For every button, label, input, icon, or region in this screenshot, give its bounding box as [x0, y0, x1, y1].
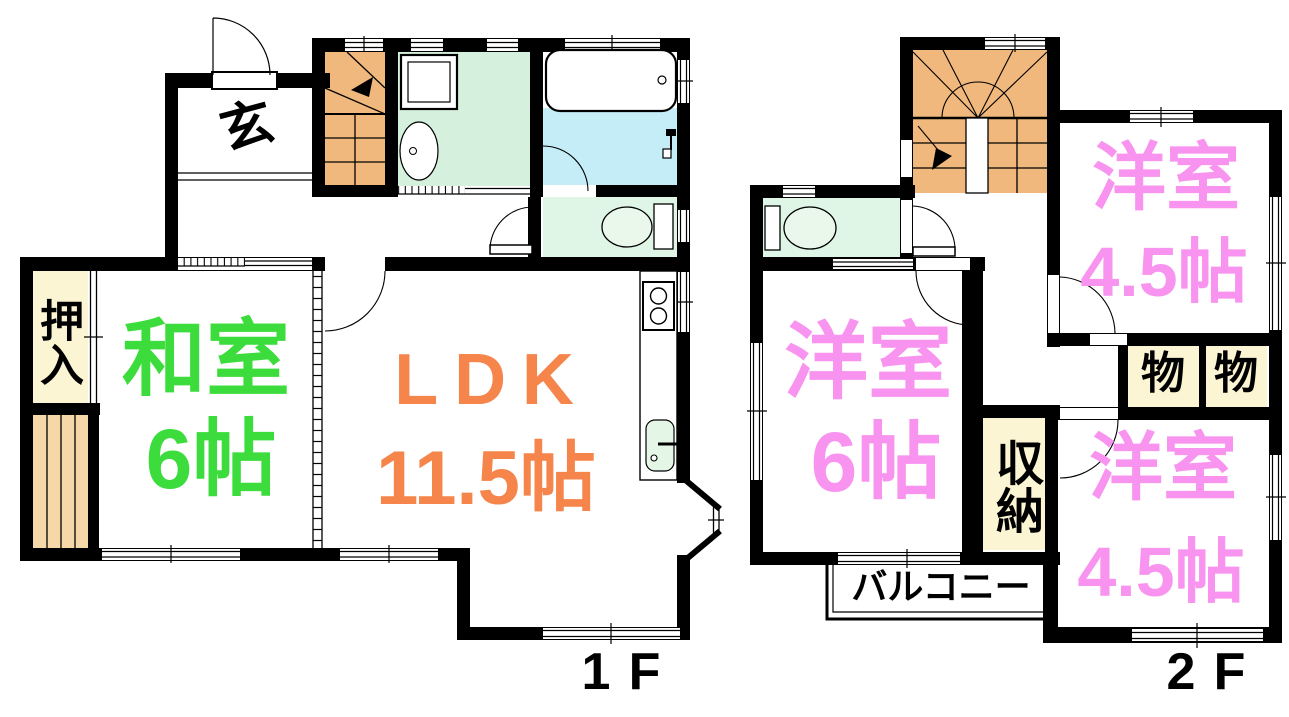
stove — [643, 282, 674, 330]
balcony-label: バルコニー — [851, 569, 1030, 605]
hall-hatch-opening — [178, 258, 245, 266]
toilet-bowl-1f — [602, 204, 673, 249]
toilet-bowl-2f — [765, 206, 836, 250]
washing-machine — [401, 55, 457, 109]
washbasin — [400, 122, 438, 180]
kitchen-counter — [640, 271, 677, 480]
japanese-room-name: 和室 — [122, 317, 290, 401]
floor-plan-canvas: 玄 押入 和室 6帖 LDK 11.5帖 1F 洋室 6帖 洋室 4.5帖 洋室… — [0, 0, 1289, 717]
floor1-label: 1F — [581, 646, 678, 698]
ldk-size: 11.5帖 — [376, 441, 596, 517]
closet-label: 押入 — [35, 298, 79, 386]
toilet-door-leaf-1f — [490, 245, 532, 254]
western-room6-name: 洋室 — [784, 320, 952, 404]
storage-small-right-label: 物 — [1214, 352, 1258, 396]
bathtub — [546, 50, 676, 111]
floor2-label: 2F — [1166, 646, 1263, 698]
washroom-hatch-opening — [398, 186, 465, 194]
western-room45-upper-name: 洋室 — [1092, 141, 1240, 215]
storage-small-left-label: 物 — [1141, 352, 1185, 396]
toilet-door-leaf-2f — [913, 247, 955, 256]
western-room45-upper-size: 4.5帖 — [1080, 237, 1247, 307]
japanese-room-size: 6帖 — [146, 417, 277, 501]
western-room45-lower-size: 4.5帖 — [1077, 537, 1244, 607]
western-room6-size: 6帖 — [811, 420, 942, 504]
bathroom-floor — [543, 108, 677, 188]
entrance-door-leaf — [212, 72, 277, 89]
ldk-name: LDK — [394, 344, 590, 416]
fixtures-2f — [765, 206, 836, 250]
storage-label: 収納 — [990, 438, 1038, 534]
western-room45-lower-name: 洋室 — [1089, 431, 1237, 505]
